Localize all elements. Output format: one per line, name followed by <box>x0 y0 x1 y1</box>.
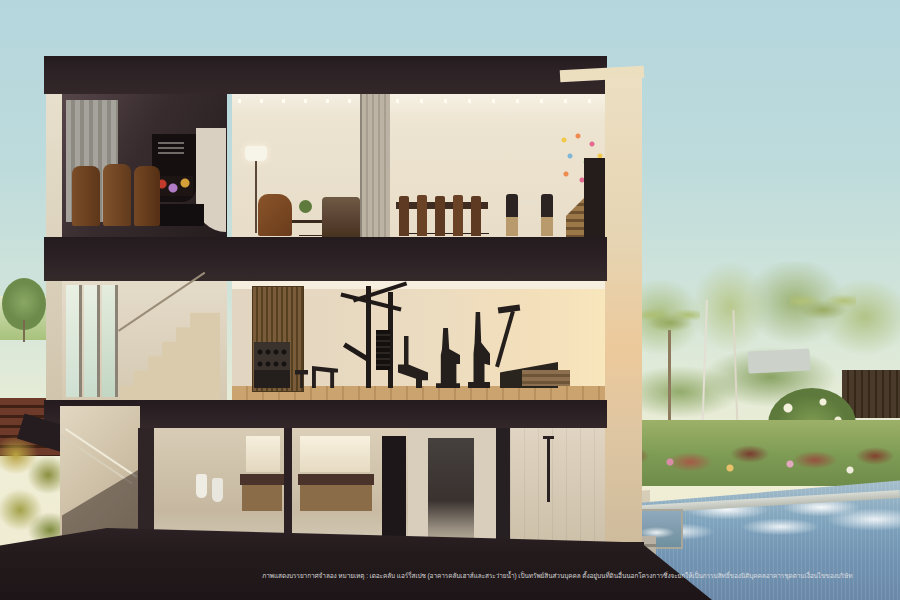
shower-pillar <box>496 428 510 546</box>
shower-column <box>547 438 550 502</box>
floor-lamp-shade <box>245 146 267 161</box>
mirror <box>246 436 280 472</box>
cafe-table <box>521 200 539 205</box>
shower-room <box>496 428 605 546</box>
ground-column <box>138 428 154 546</box>
lounge-chair <box>258 194 292 236</box>
recliner-seat <box>134 166 160 226</box>
shower-head <box>543 436 554 439</box>
potted-plant <box>299 200 312 213</box>
roof-slab <box>44 56 607 94</box>
dumbbell-rack <box>254 342 290 388</box>
building-right-wall <box>605 78 642 548</box>
mirror <box>300 436 370 472</box>
tall-chair <box>471 196 481 236</box>
cafe-chair <box>541 194 553 236</box>
ceiling-lights <box>396 99 596 103</box>
corridor-opening <box>428 438 474 542</box>
mid-slab-upper <box>44 237 607 281</box>
restroom-divider <box>284 428 292 546</box>
vanity-counter <box>240 474 284 485</box>
left-tree-trunk <box>23 320 25 342</box>
recliner-seat <box>103 164 131 226</box>
doorway-dark <box>382 436 406 542</box>
clubhouse-render-scene: ภาพแสดงบรรยากาศจำลอง หมายเหตุ : เดอะคลับ… <box>0 0 900 600</box>
tall-chair <box>399 196 409 236</box>
cafe-chair <box>506 194 518 236</box>
stair-rail-frame <box>584 158 605 238</box>
vanity-cabinet <box>300 485 372 511</box>
palm-fronds <box>790 290 856 330</box>
room-partition <box>360 94 392 237</box>
vanity-cabinet <box>242 485 282 511</box>
exercise-mats <box>522 370 570 386</box>
stairwell-window <box>84 285 100 397</box>
stairwell-window <box>102 285 118 397</box>
screen-caption-lines <box>158 142 184 156</box>
recliner-seat <box>72 166 100 226</box>
urinal <box>212 478 223 502</box>
vanity-counter <box>298 474 374 485</box>
floor-lamp-pole <box>255 161 257 233</box>
stairwell-window <box>66 285 82 397</box>
multi-gym-weights <box>376 330 390 370</box>
palm-fronds <box>640 305 700 341</box>
sofa <box>322 197 360 237</box>
tall-chair <box>435 196 445 236</box>
tall-chair <box>453 195 463 236</box>
tall-chair <box>417 195 427 236</box>
screen-content <box>155 176 193 196</box>
ceiling-lights <box>238 99 354 103</box>
background-roof <box>747 348 810 373</box>
disclaimer-caption: ภาพแสดงบรรยากาศจำลอง หมายเหตุ : เดอะคลับ… <box>262 571 852 581</box>
urinal <box>196 474 207 498</box>
